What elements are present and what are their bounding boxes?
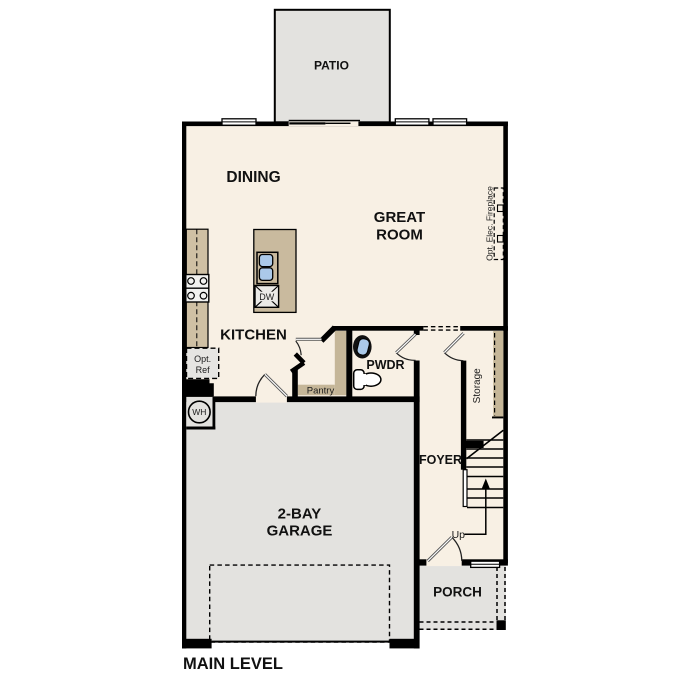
svg-text:PORCH: PORCH (433, 585, 482, 600)
svg-text:DINING: DINING (226, 169, 280, 186)
svg-text:ROOM: ROOM (376, 227, 423, 244)
svg-text:Opt. Elec. Fireplace: Opt. Elec. Fireplace (485, 186, 495, 261)
svg-text:PATIO: PATIO (314, 59, 349, 73)
svg-text:FOYER: FOYER (419, 453, 462, 467)
svg-text:MAIN LEVEL: MAIN LEVEL (183, 655, 283, 673)
svg-text:2-BAY: 2-BAY (278, 506, 322, 523)
svg-text:Pantry: Pantry (307, 385, 335, 396)
svg-text:Ref: Ref (196, 365, 211, 375)
svg-text:DW: DW (259, 292, 274, 302)
svg-text:KITCHEN: KITCHEN (220, 327, 287, 344)
svg-text:GARAGE: GARAGE (267, 523, 333, 540)
svg-text:GREAT: GREAT (374, 209, 425, 226)
svg-text:PWDR: PWDR (366, 358, 404, 372)
svg-text:Storage: Storage (472, 368, 483, 403)
svg-text:Opt.: Opt. (194, 354, 211, 364)
svg-text:WH: WH (192, 407, 206, 417)
